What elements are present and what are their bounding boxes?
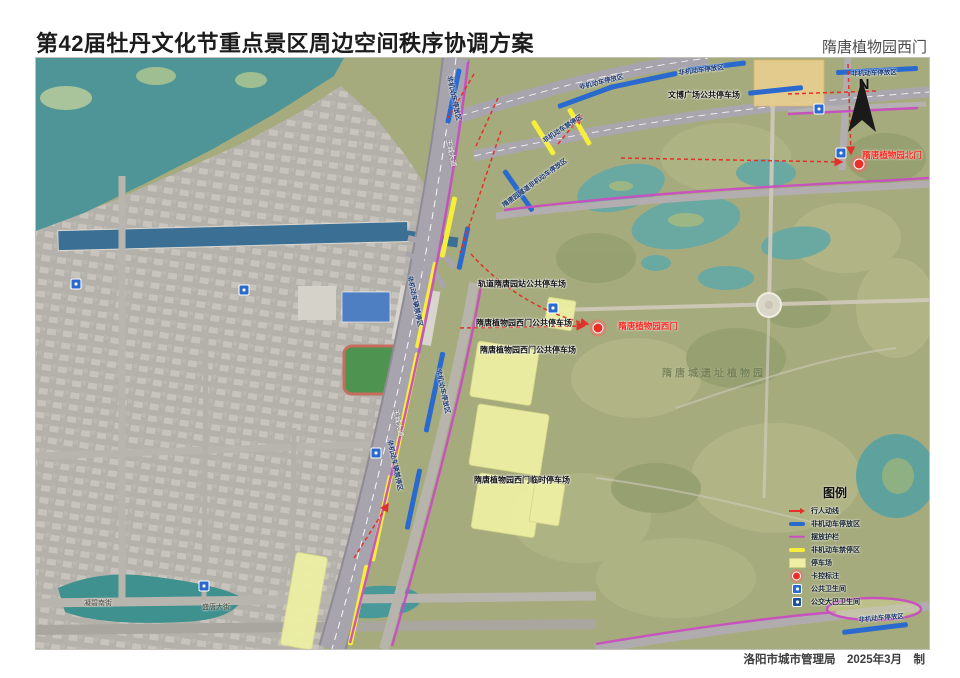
credit-line: 洛阳市城市管理局 2025年3月 制 — [744, 651, 925, 667]
legend-items: 行人动线 非机动车停放区 摆放护栏 非机动车禁停区 停车场 — [789, 504, 921, 608]
legend-item: 公共卫生间 — [789, 582, 921, 595]
legend-item-icon — [789, 558, 806, 568]
legend-item: 非机动车禁停区 — [789, 543, 921, 556]
map-canvas: 轨道隋唐园站公共停车场隋唐植物园西门公共停车场隋唐植物园西门公共停车场隋唐植物园… — [35, 57, 930, 650]
page-title: 第42届牡丹文化节重点景区周边空间秩序协调方案 — [36, 26, 534, 58]
legend-item-label: 公共卫生间 — [811, 584, 846, 594]
legend-item-label: 公交大巴卫生间 — [811, 597, 860, 607]
legend-item: 行人动线 — [789, 504, 921, 517]
legend-item-label: 非机动车禁停区 — [811, 545, 860, 555]
toilet-icon — [71, 279, 82, 290]
legend-item-label: 卡控标注 — [811, 571, 839, 581]
legend-item: 卡控标注 — [789, 569, 921, 582]
legend-item-icon — [789, 519, 806, 529]
legend-item: 摆放护栏 — [789, 530, 921, 543]
legend-item-label: 行人动线 — [811, 506, 839, 516]
legend-item: 停车场 — [789, 556, 921, 569]
plan-poster: 第42届牡丹文化节重点景区周边空间秩序协调方案 隋唐植物园西门 — [0, 0, 960, 678]
legend-item-icon — [789, 532, 806, 542]
toilet-icon — [199, 581, 210, 592]
toilet-icon — [814, 104, 825, 115]
compass: N — [842, 76, 886, 168]
legend-item-label: 停车场 — [811, 558, 832, 568]
legend-item: 公交大巴卫生间 — [789, 595, 921, 608]
gate-marker-dot — [593, 323, 604, 334]
legend-item-icon — [789, 584, 806, 594]
toilet-icon — [548, 303, 559, 314]
toilet-icon — [239, 285, 250, 296]
toilet-icon — [371, 448, 382, 459]
legend-title: 图例 — [823, 484, 921, 501]
legend-item-label: 摆放护栏 — [811, 532, 839, 542]
legend: 图例 行人动线 非机动车停放区 摆放护栏 非机动车禁停区 — [789, 484, 921, 608]
legend-item-icon — [789, 571, 806, 581]
legend-item-icon — [789, 506, 806, 516]
location-label: 隋唐植物园西门 — [822, 36, 927, 57]
legend-item-label: 非机动车停放区 — [811, 519, 860, 529]
legend-item-icon — [789, 545, 806, 555]
north-arrow-icon — [842, 76, 882, 136]
legend-item: 非机动车停放区 — [789, 517, 921, 530]
legend-item-icon — [789, 597, 806, 607]
